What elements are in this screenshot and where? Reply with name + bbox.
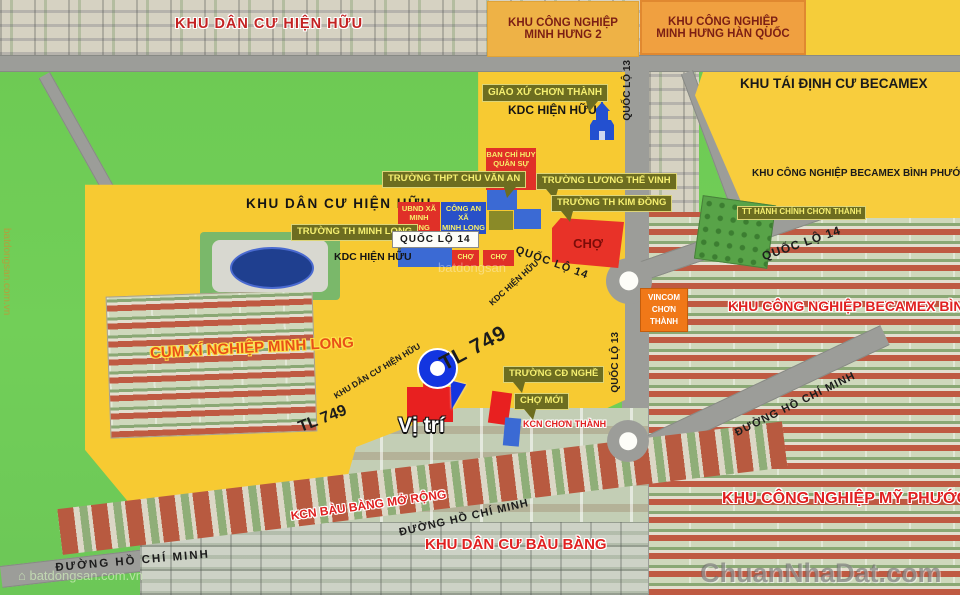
callout-truong-luong-the-vinh: TRƯỜNG LƯƠNG THẾ VINH bbox=[536, 173, 677, 190]
zone-box-kcn-minh-hung-2: KHU CÔNG NGHIỆP MINH HƯNG 2 bbox=[487, 1, 639, 57]
watermark-bottom-left-text: batdongsan.com.vn bbox=[29, 568, 142, 583]
watermark-left-vertical: batdongsan.com.vn bbox=[1, 228, 12, 315]
zone-label-kdc-hien-huu-2: KDC HIỆN HỮU bbox=[334, 251, 412, 263]
zone-label-kcn-becamex-small: KHU CÔNG NGHIỆP BECAMEX BÌNH PHƯỚC bbox=[752, 168, 880, 179]
school-building-3 bbox=[514, 209, 541, 229]
callout-truong-thpt-chu-van-an: TRƯỜNG THPT CHU VĂN AN bbox=[382, 171, 526, 188]
watermark-center: batdongsan bbox=[438, 260, 506, 275]
callout-tt-hanh-chinh: TT HÀNH CHÍNH CHƠN THÀNH bbox=[737, 206, 866, 220]
new-market-parcel bbox=[503, 417, 521, 446]
road-label-ql13-north: QUỐC LỘ 13 bbox=[622, 60, 633, 121]
location-map: KHU DÂN CƯ HIỆN HỮU KHU CÔNG NGHIỆP MINH… bbox=[0, 0, 960, 595]
zone-label-kcn-becamex-big: KHU CÔNG NGHIỆP BECAMEX BÌNH PHƯỚC bbox=[728, 298, 896, 314]
zone-label-kcn-chon-thanh: KCN CHƠN THÀNH bbox=[523, 419, 589, 429]
zone-label-vi-tri: Vị trí bbox=[398, 414, 445, 438]
zone-label-khu-tai-dinh-cu-becamex: KHU TÁI ĐỊNH CƯ BECAMEX bbox=[740, 76, 870, 91]
zone-label-kdc-hien-huu-1: KDC HIỆN HỮU bbox=[508, 103, 597, 117]
zone-topright-yellow bbox=[802, 0, 960, 55]
school-building-2 bbox=[489, 211, 513, 230]
callout-vincom-chon-thanh: VINCOM CHƠN THÀNH bbox=[640, 288, 688, 332]
road-top bbox=[0, 55, 960, 72]
zone-box-kcn-minh-hung-han-quoc: KHU CÔNG NGHIỆP MINH HƯNG HÀN QUỐC bbox=[640, 0, 806, 55]
house-watermark-icon: ⌂ bbox=[18, 568, 29, 583]
watermark-bottom-left: ⌂ batdongsan.com.vn bbox=[18, 568, 143, 583]
market-zone-label: CHỢ bbox=[573, 236, 603, 251]
road-label-ql14-box: QUỐC LỘ 14 bbox=[392, 231, 479, 248]
watermark-chuannhadat: ChuanNhaDat.com bbox=[700, 558, 942, 589]
stadium-icon bbox=[230, 247, 314, 289]
callout-truong-cd-nghe: TRƯỜNG CĐ NGHỀ bbox=[503, 366, 604, 383]
zone-label-khu-dan-cu-bau-bang: KHU DÂN CƯ BÀU BÀNG bbox=[425, 536, 607, 553]
callout-cho-moi: CHỢ MỚI bbox=[514, 393, 569, 410]
callout-cong-an-xa-minh-long: CÔNG AN XÃ MINH LONG bbox=[441, 202, 486, 234]
callout-giao-xu-chon-thanh: GIÁO XỨ CHƠN THÀNH bbox=[482, 84, 608, 102]
zone-label-kcn-my-phuoc-5: KHU CÔNG NGHIỆP MỸ PHƯỚC 5 bbox=[722, 490, 894, 508]
callout-truong-th-kim-dong: TRƯỜNG TH KIM ĐỒNG bbox=[551, 195, 672, 212]
zone-label-kdc-hien-huu-top: KHU DÂN CƯ HIỆN HỮU bbox=[175, 16, 363, 32]
roundabout-south bbox=[607, 420, 649, 462]
cum-xi-nghiep-minh-long-area bbox=[106, 289, 318, 438]
stadium-base bbox=[212, 240, 328, 292]
road-label-ql13-south: QUỐC LỘ 13 bbox=[610, 332, 621, 393]
